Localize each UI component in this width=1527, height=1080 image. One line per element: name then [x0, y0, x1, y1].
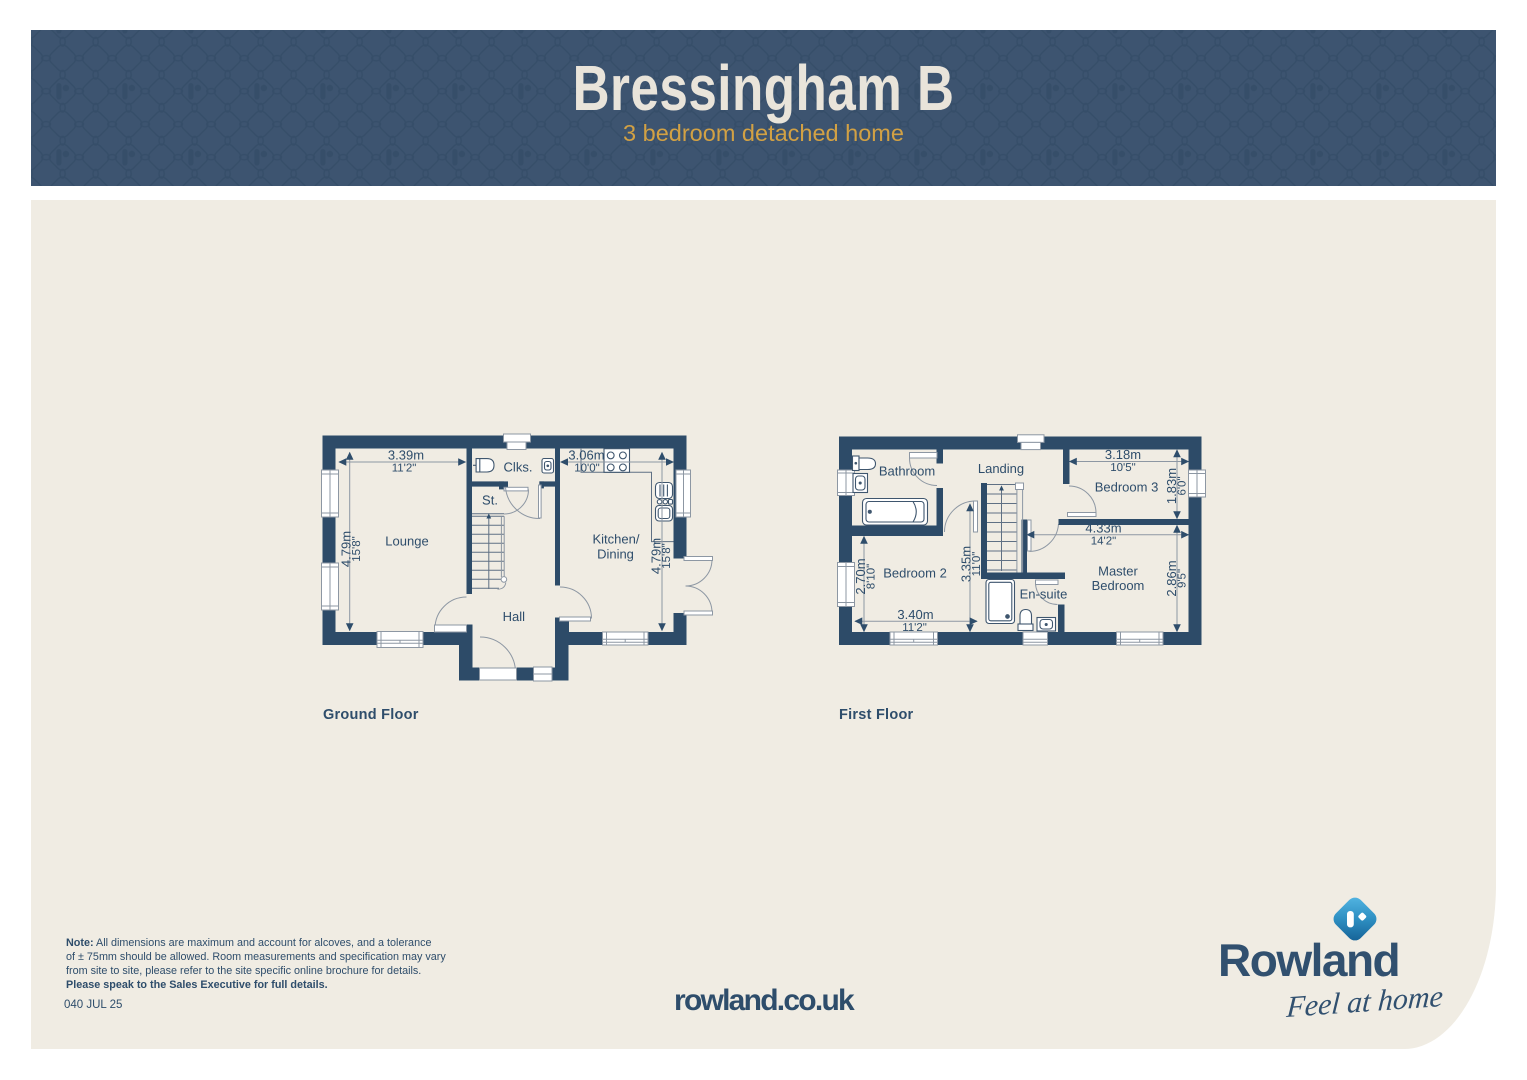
svg-text:Master: Master: [1098, 564, 1138, 579]
svg-text:Feel at home: Feel at home: [1285, 980, 1445, 1024]
svg-text:Hall: Hall: [503, 609, 526, 624]
svg-text:Bedroom: Bedroom: [1092, 578, 1145, 593]
svg-text:4.33m: 4.33m: [1085, 520, 1121, 535]
svg-text:10'0": 10'0": [574, 463, 599, 475]
svg-text:Lounge: Lounge: [385, 534, 428, 549]
svg-text:15'8": 15'8": [351, 536, 363, 561]
svg-text:Bathroom: Bathroom: [879, 464, 935, 479]
svg-text:Bedroom 2: Bedroom 2: [883, 566, 947, 581]
svg-text:3.40m: 3.40m: [897, 607, 933, 622]
svg-text:St.: St.: [482, 493, 498, 508]
svg-text:10'5": 10'5": [1110, 462, 1135, 474]
svg-text:3.06m: 3.06m: [568, 448, 604, 463]
svg-text:Kitchen/: Kitchen/: [593, 532, 640, 547]
svg-text:8'10": 8'10": [866, 564, 878, 589]
svg-text:15'8": 15'8": [661, 543, 673, 568]
svg-text:Landing: Landing: [978, 461, 1024, 476]
svg-text:14'2": 14'2": [1091, 535, 1116, 547]
svg-text:Bedroom 3: Bedroom 3: [1095, 480, 1159, 495]
svg-text:3.39m: 3.39m: [388, 448, 424, 463]
svg-text:3.18m: 3.18m: [1105, 447, 1141, 462]
svg-text:11'0": 11'0": [971, 552, 983, 577]
svg-text:Rowland: Rowland: [1218, 934, 1399, 986]
svg-text:6'0": 6'0": [1177, 476, 1189, 495]
svg-text:9'5": 9'5": [1177, 569, 1189, 588]
svg-text:11'2": 11'2": [902, 622, 927, 634]
svg-text:Clks.: Clks.: [504, 460, 533, 475]
svg-text:En-suite: En-suite: [1020, 587, 1068, 602]
svg-text:Dining: Dining: [597, 547, 634, 562]
svg-text:11'2": 11'2": [392, 463, 417, 475]
